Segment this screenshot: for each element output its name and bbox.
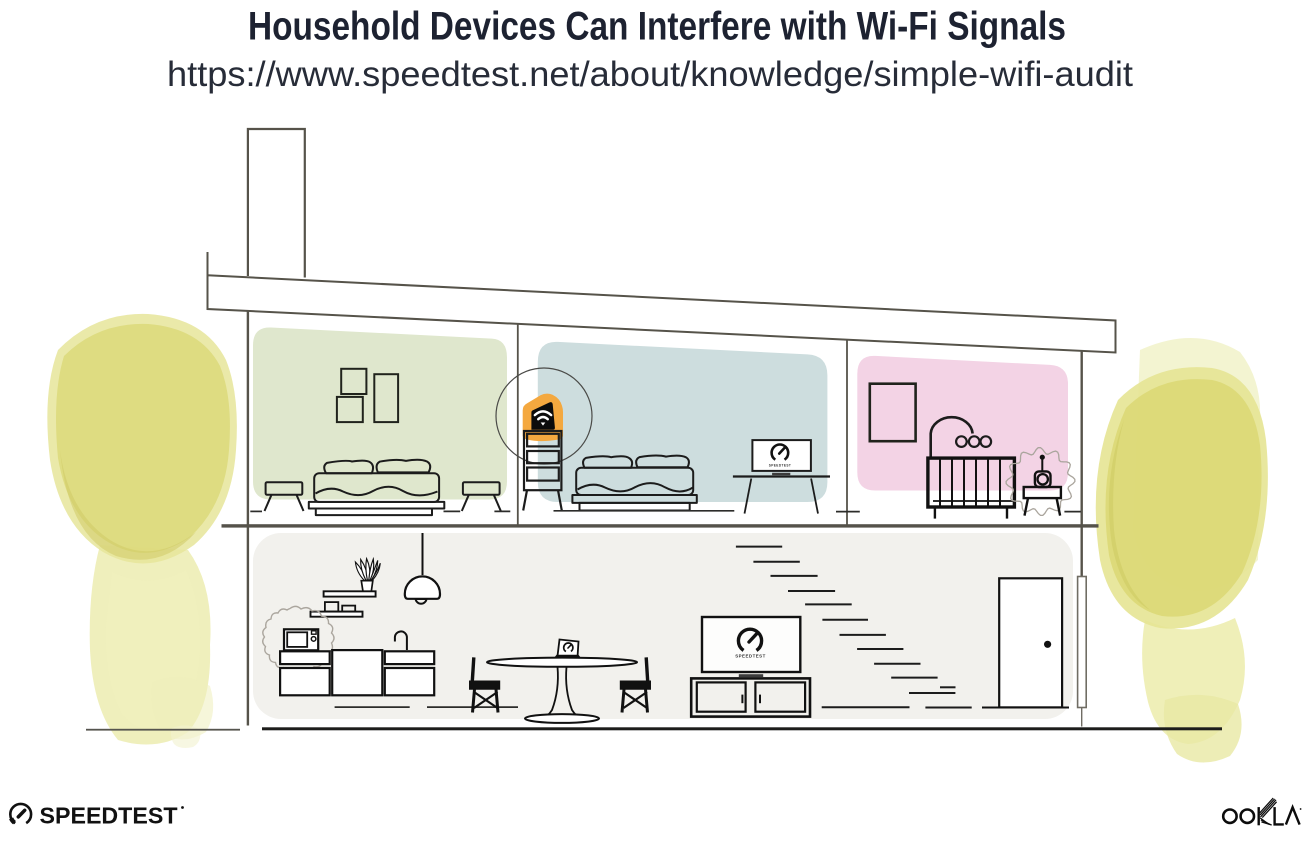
svg-text:https://www.speedtest.net/abou: https://www.speedtest.net/about/knowledg…	[167, 55, 1133, 94]
svg-text:Household Devices Can Interfer: Household Devices Can Interfere with Wi-…	[248, 5, 1066, 49]
svg-text:SPEEDTEST: SPEEDTEST	[735, 654, 766, 659]
svg-text:SPEEDTEST: SPEEDTEST	[40, 802, 179, 828]
svg-text:SPEEDTEST: SPEEDTEST	[769, 463, 792, 467]
